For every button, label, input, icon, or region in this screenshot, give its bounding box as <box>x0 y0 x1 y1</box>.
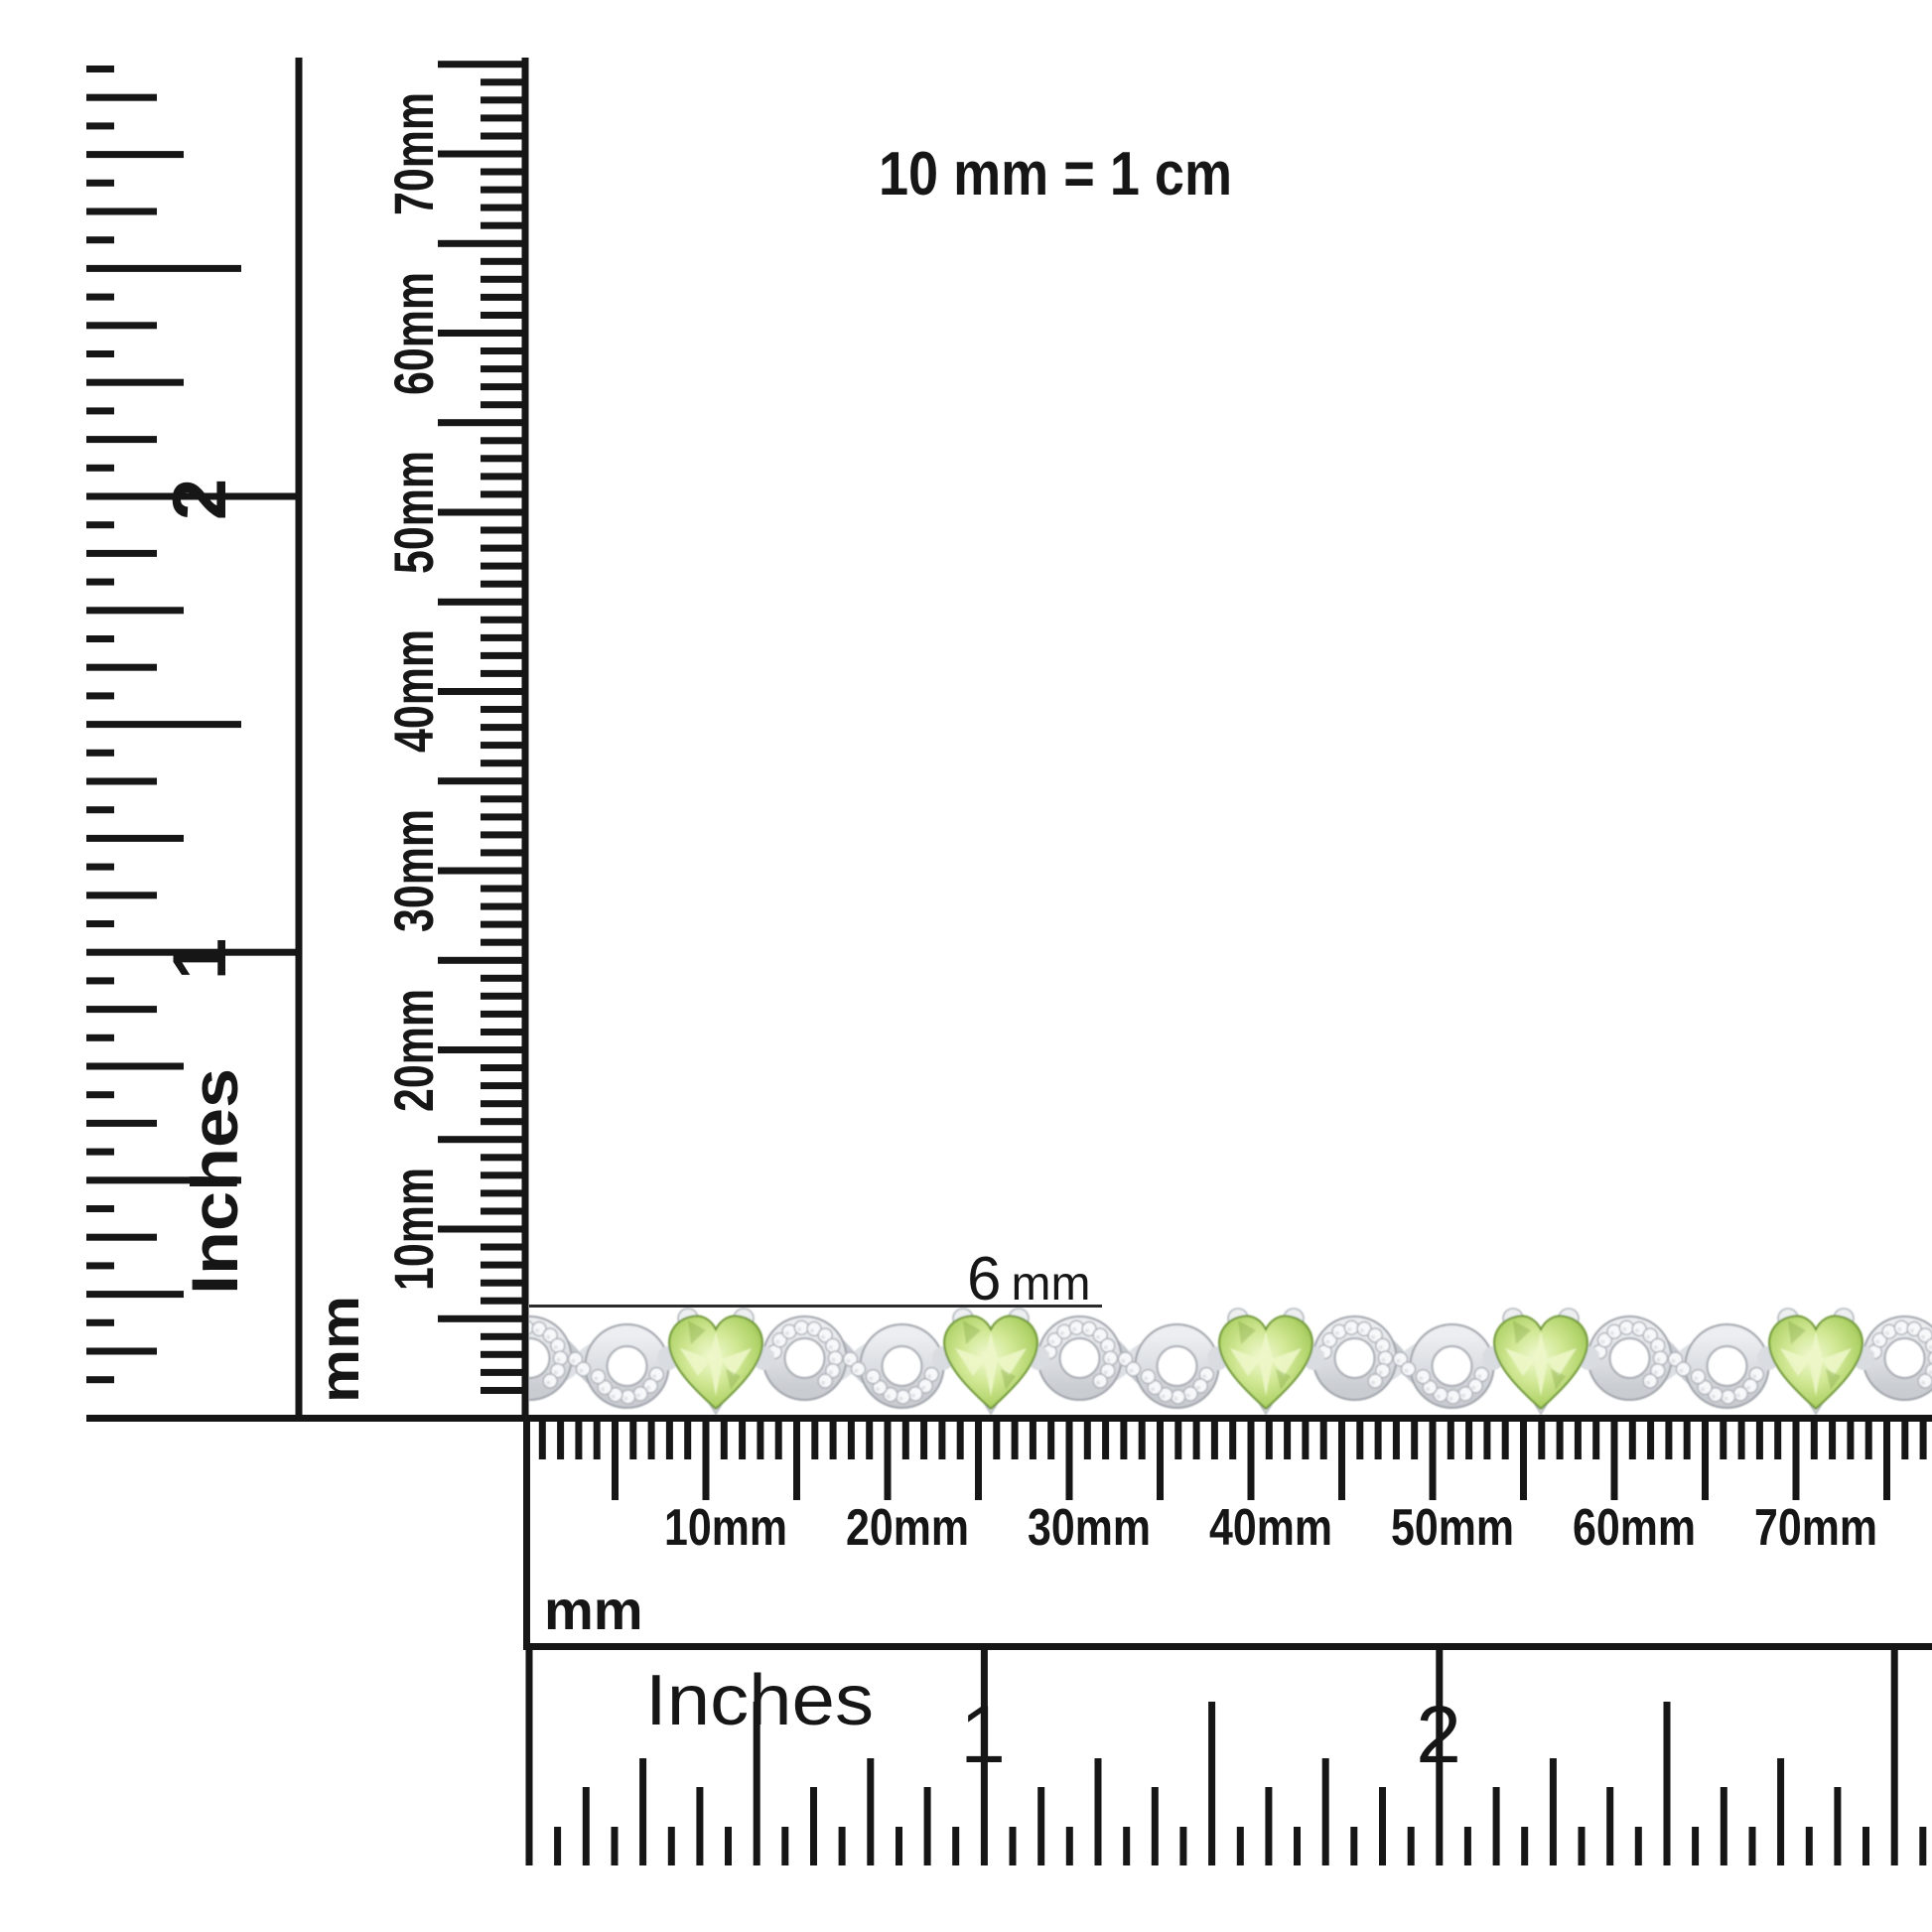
svg-text:10mm: 10mm <box>382 1168 445 1291</box>
svg-text:1: 1 <box>158 938 242 980</box>
svg-text:6mm: 6mm <box>967 1245 1090 1313</box>
svg-text:30mm: 30mm <box>382 809 445 932</box>
svg-text:70mm: 70mm <box>382 92 445 215</box>
svg-text:Inches: Inches <box>645 1661 874 1740</box>
svg-text:2: 2 <box>1416 1690 1461 1780</box>
svg-text:mm: mm <box>308 1296 370 1403</box>
svg-text:60mm: 60mm <box>1573 1499 1696 1557</box>
svg-text:20mm: 20mm <box>846 1499 969 1557</box>
svg-text:40mm: 40mm <box>1209 1499 1332 1557</box>
svg-text:10mm: 10mm <box>664 1499 787 1557</box>
svg-text:70mm: 70mm <box>1754 1499 1877 1557</box>
svg-text:2: 2 <box>158 479 242 520</box>
svg-text:1: 1 <box>960 1690 1006 1780</box>
svg-text:50mm: 50mm <box>382 451 445 574</box>
svg-text:60mm: 60mm <box>382 272 445 395</box>
svg-text:mm: mm <box>544 1579 643 1641</box>
svg-text:Inches: Inches <box>178 1068 251 1295</box>
svg-text:30mm: 30mm <box>1028 1499 1151 1557</box>
svg-text:40mm: 40mm <box>382 629 445 753</box>
svg-text:10 mm = 1 cm: 10 mm = 1 cm <box>879 140 1232 208</box>
svg-text:50mm: 50mm <box>1391 1499 1514 1557</box>
svg-text:20mm: 20mm <box>382 989 445 1112</box>
